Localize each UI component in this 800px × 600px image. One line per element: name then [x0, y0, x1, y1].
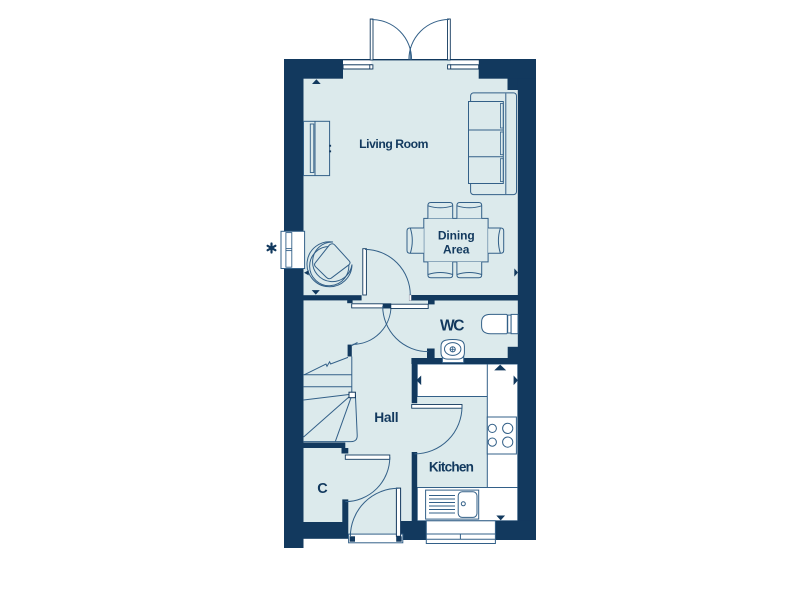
- svg-text:Area: Area: [443, 242, 470, 256]
- svg-text:Living Room: Living Room: [359, 137, 428, 151]
- svg-text:C: C: [317, 481, 328, 497]
- svg-text:Kitchen: Kitchen: [429, 460, 474, 475]
- svg-text:Dining: Dining: [438, 229, 475, 243]
- svg-text:Hall: Hall: [374, 410, 398, 425]
- svg-text:WC: WC: [440, 317, 464, 334]
